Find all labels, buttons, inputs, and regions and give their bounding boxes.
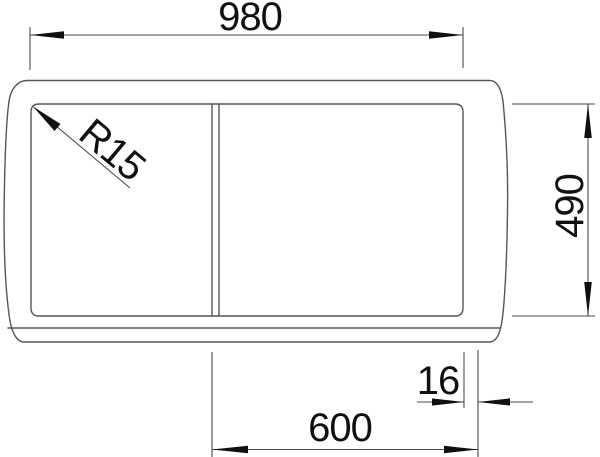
dim-490-arrow-top: [584, 104, 592, 138]
dim-600-arrow-right: [444, 446, 478, 454]
drawing-canvas: [0, 0, 600, 457]
dim-label-cabinet-width: 600: [308, 408, 372, 448]
dim-980-arrow-left: [30, 31, 64, 39]
dim-16-arrow-right: [478, 398, 510, 405]
dim-label-width: 980: [218, 0, 282, 37]
sink-outer-outline: [4, 81, 508, 343]
dim-label-edge-offset: 16: [417, 361, 460, 401]
dim-r15-arrow: [33, 107, 61, 132]
dim-600-arrow-left: [212, 446, 248, 454]
sink-dimension-drawing: 980 490 R15 16 600: [0, 0, 600, 457]
dim-label-depth: 490: [550, 174, 590, 238]
dim-980-arrow-right: [429, 31, 463, 39]
dim-490-arrow-bottom: [584, 282, 592, 316]
